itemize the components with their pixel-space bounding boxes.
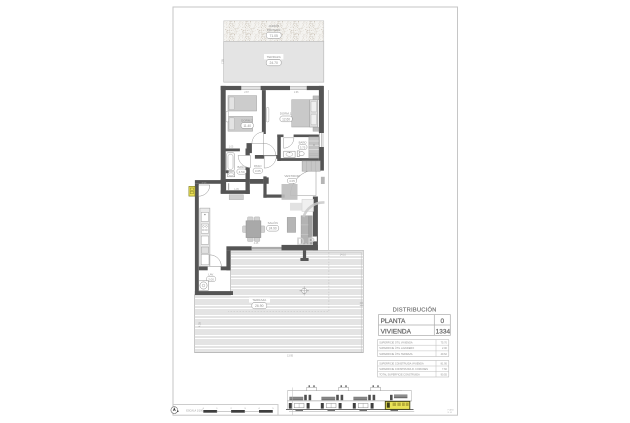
svg-text:SALÓN: SALÓN bbox=[268, 220, 278, 225]
svg-text:7.95: 7.95 bbox=[222, 59, 225, 64]
svg-text:VESTIDOR: VESTIDOR bbox=[284, 174, 300, 178]
svg-text:PASO: PASO bbox=[254, 164, 262, 168]
svg-text:SUPERFICIE CONSTRUIDA VIVIENDA: SUPERFICIE CONSTRUIDA VIVIENDA bbox=[379, 362, 424, 365]
svg-text:4.35: 4.35 bbox=[199, 322, 202, 327]
svg-text:2.87: 2.87 bbox=[244, 92, 249, 94]
svg-text:12.60: 12.60 bbox=[282, 117, 290, 121]
svg-text:49.62: 49.62 bbox=[441, 353, 448, 356]
svg-text:2.96: 2.96 bbox=[294, 92, 299, 94]
svg-text:DORM.1: DORM.1 bbox=[280, 112, 292, 116]
svg-text:81.95: 81.95 bbox=[441, 362, 448, 365]
svg-text:LAV.: LAV. bbox=[208, 272, 214, 276]
svg-text:90.55: 90.55 bbox=[441, 373, 448, 376]
svg-text:PLANTA: PLANTA bbox=[381, 318, 406, 325]
svg-text:4.50: 4.50 bbox=[239, 170, 245, 174]
svg-text:SUPERFICIE ÚTIL TERRAZA: SUPERFICIE ÚTIL TERRAZA bbox=[379, 353, 413, 356]
svg-text:N. 03: N. 03 bbox=[448, 412, 453, 414]
svg-text:0.90: 0.90 bbox=[202, 183, 207, 185]
svg-text:11.40: 11.40 bbox=[243, 124, 251, 128]
svg-text:DORM.2: DORM.2 bbox=[241, 118, 253, 122]
svg-text:2.00: 2.00 bbox=[208, 277, 214, 281]
svg-text:SUPERFICIE CONSTRUIDA R. COMUN: SUPERFICIE CONSTRUIDA R. COMUNES bbox=[379, 368, 428, 371]
svg-text:4.05: 4.05 bbox=[289, 179, 295, 183]
svg-text:SUPERFICIE ÚTIL VIVIENDA: SUPERFICIE ÚTIL VIVIENDA bbox=[379, 342, 413, 345]
svg-text:24.90: 24.90 bbox=[269, 227, 277, 231]
svg-text:VIVIENDA: VIVIENDA bbox=[381, 328, 412, 335]
svg-text:TERRAZA: TERRAZA bbox=[252, 298, 266, 302]
svg-text:TOTAL SUPERFICIE CONSTRUIDA: TOTAL SUPERFICIE CONSTRUIDA bbox=[379, 373, 420, 376]
svg-text:4.45: 4.45 bbox=[254, 243, 259, 245]
svg-text:71.05: 71.05 bbox=[269, 34, 278, 38]
svg-text:24.70: 24.70 bbox=[269, 61, 278, 65]
svg-text:1.05: 1.05 bbox=[229, 147, 234, 149]
svg-text:14.10: 14.10 bbox=[340, 253, 347, 256]
svg-text:TERRAZA: TERRAZA bbox=[267, 55, 281, 59]
svg-text:PLANO: PLANO bbox=[448, 408, 455, 411]
svg-text:DISTRIBUCIÓN: DISTRIBUCIÓN bbox=[393, 306, 437, 313]
svg-text:7.60: 7.60 bbox=[442, 368, 447, 371]
svg-text:PRIVADO: PRIVADO bbox=[267, 28, 281, 32]
svg-text:SUPERFICIE ÚTIL LAVADERO: SUPERFICIE ÚTIL LAVADERO bbox=[379, 347, 414, 350]
svg-text:ESCALA 1/100: ESCALA 1/100 bbox=[186, 410, 203, 413]
svg-text:3.05: 3.05 bbox=[255, 169, 261, 173]
svg-text:13.95: 13.95 bbox=[287, 354, 294, 357]
svg-text:BAÑO: BAÑO bbox=[299, 140, 308, 145]
svg-text:3.75: 3.75 bbox=[300, 145, 306, 149]
svg-text:2.00: 2.00 bbox=[442, 347, 447, 350]
svg-text:26.90: 26.90 bbox=[255, 304, 264, 308]
svg-text:75.70: 75.70 bbox=[441, 342, 448, 345]
svg-text:0: 0 bbox=[440, 318, 444, 325]
svg-text:1.05: 1.05 bbox=[234, 189, 239, 191]
svg-text:1334: 1334 bbox=[436, 328, 451, 335]
svg-text:D.P: D.P bbox=[297, 236, 315, 248]
